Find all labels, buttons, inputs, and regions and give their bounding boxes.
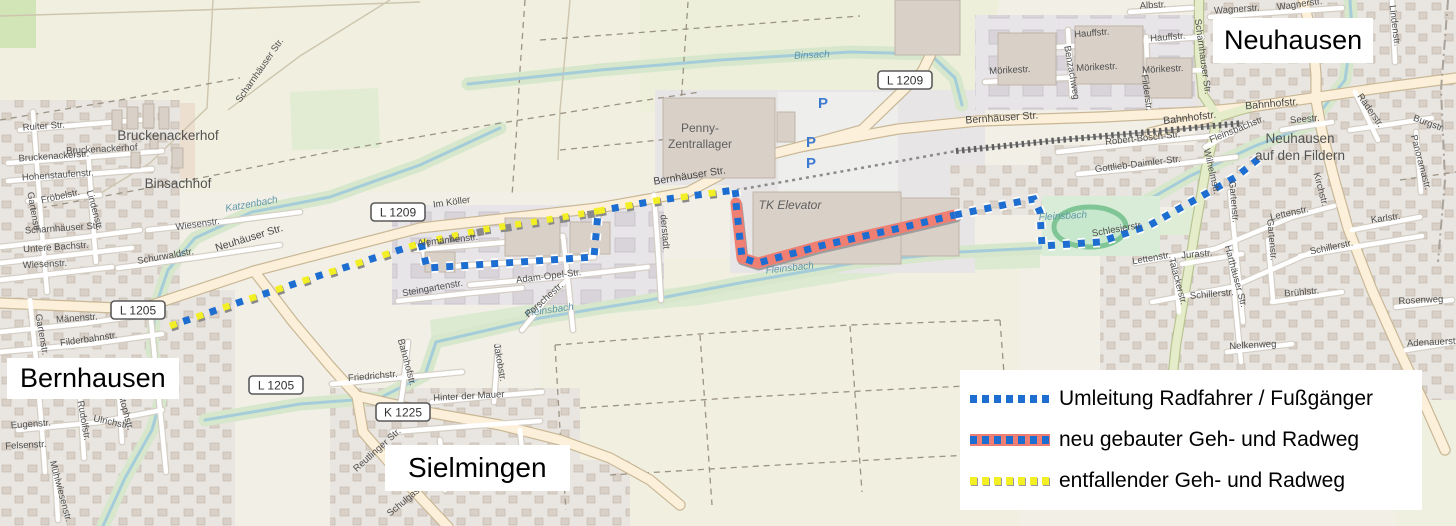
place-label: Bruckenackerhof: [117, 128, 219, 143]
legend-label-entfall: entfallender Geh- und Radweg: [1059, 469, 1345, 493]
street-label: Rosenweg: [1398, 294, 1443, 307]
poi-label: Penny-: [681, 121, 719, 135]
road-shield-text: L 1205: [258, 379, 295, 393]
building: [172, 148, 183, 168]
parking-icon: P: [818, 95, 828, 112]
legend-row-entfall: entfallender Geh- und Radweg: [970, 469, 1412, 493]
poi-label: TK Elevator: [759, 198, 823, 212]
legend: Umleitung Radfahrer / Fußgänger neu geba…: [960, 370, 1422, 510]
legend-row-umleitung: Umleitung Radfahrer / Fußgänger: [970, 387, 1412, 411]
legend-sample-umleitung-icon: [970, 395, 1050, 403]
legend-sample-entfall-icon: [970, 477, 1050, 485]
map-area-green-topleft: [0, 0, 36, 48]
town-label-neuhausen: Neuhausen: [1213, 18, 1373, 63]
building: [159, 107, 169, 129]
road-shield-text: L 1209: [887, 74, 924, 88]
parking-icon: P: [806, 155, 816, 172]
building: [131, 152, 140, 168]
legend-sample-neubau-icon: [970, 434, 1050, 446]
place-label: Binsachhof: [145, 176, 212, 191]
street-label: Felsenstr.: [5, 439, 47, 452]
stream-label: Binsach: [794, 49, 831, 62]
place-label: Neuhausen: [1265, 131, 1334, 146]
legend-row-neubau: neu gebauter Geh- und Radweg: [970, 428, 1412, 452]
building: [112, 110, 122, 130]
parking-icon: P: [806, 134, 816, 151]
map-screenshot: PPPL 1209L 1209L 1205L 1205K 1225Ruiter …: [0, 0, 1456, 526]
road-shield-text: L 1205: [120, 304, 157, 318]
building: [777, 112, 795, 142]
street-label: Wiesenstr.: [22, 258, 67, 271]
street-label: Albstr.: [1139, 0, 1166, 12]
place-label: auf den Fildern: [1255, 148, 1345, 163]
town-label-sielmingen: Sielmingen: [385, 445, 570, 491]
town-label-bernhausen: Bernhausen: [7, 358, 179, 399]
legend-label-umleitung: Umleitung Radfahrer / Fußgänger: [1059, 387, 1373, 411]
poi-label: Zentrallager: [668, 137, 732, 151]
road-shield-text: K 1225: [384, 406, 422, 420]
street-label: Mörikestr.: [989, 64, 1031, 77]
legend-label-neubau: neu gebauter Geh- und Radweg: [1059, 428, 1359, 452]
street-label: Mörikestr.: [1076, 61, 1118, 74]
building: [143, 104, 154, 128]
building: [127, 107, 138, 129]
road-shield-text: L 1209: [380, 206, 417, 220]
building: [998, 33, 1056, 85]
map-area-green-vineyard: [290, 88, 380, 150]
building: [895, 0, 960, 55]
